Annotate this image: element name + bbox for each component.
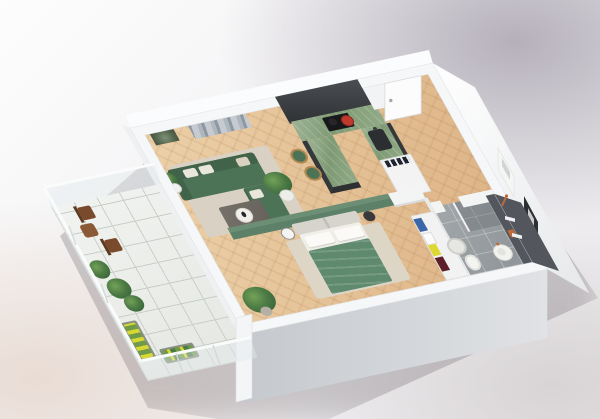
front-wall-face [245,269,548,403]
walls-overlay [0,0,600,419]
door-handle [389,99,392,102]
left-wall-top-edge [122,124,245,334]
balcony-rail-glass [45,164,161,208]
shower-head [505,194,508,197]
floorplan-render [0,0,600,419]
balcony-handrail [44,187,141,361]
front-door [385,76,421,122]
